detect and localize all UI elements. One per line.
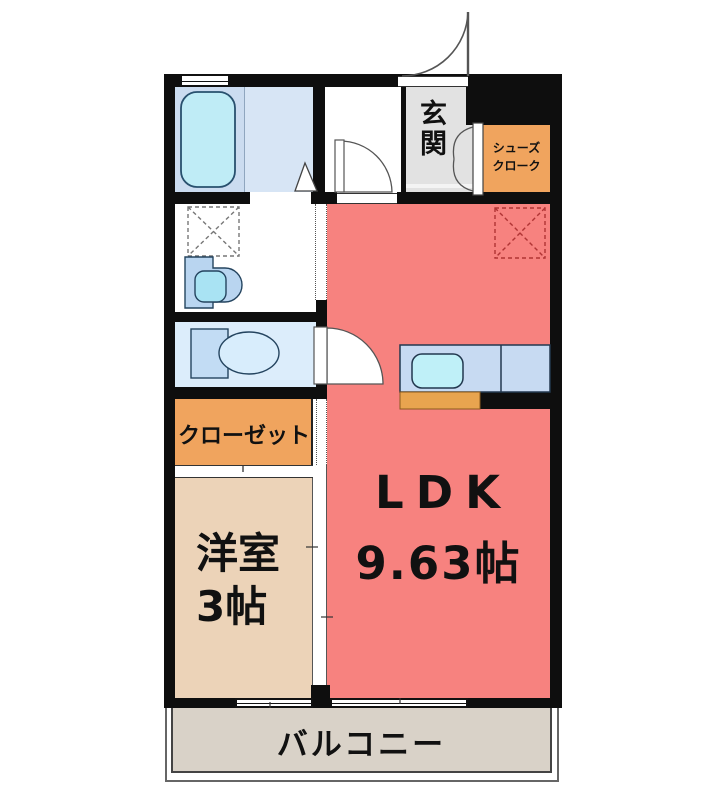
entry-door [402, 12, 468, 76]
ldk-name: LDK [337, 466, 550, 519]
washbasin [185, 257, 242, 308]
ldk-label: LDK 9.63帖 [327, 466, 550, 592]
washing-machine-space [188, 207, 239, 256]
shoe-cloak-label: シューズ クローク [483, 139, 550, 175]
refrigerator-space [495, 208, 545, 258]
balcony-label: バルコニー [171, 719, 552, 764]
kitchen-sink [412, 354, 463, 388]
kitchen-base-cabinet [400, 392, 480, 409]
shoe-cloak-label-line1: シューズ [493, 141, 540, 155]
shoe-cloak-label-line2: クローク [492, 159, 540, 173]
genkan-label: 玄関 [412, 99, 446, 171]
ldk-size: 9.63帖 [327, 527, 550, 592]
bathroom-folding-door [295, 163, 317, 191]
western-room-label: 洋室 3帖 [196, 528, 280, 633]
shoe-cloak-doors [453, 123, 483, 195]
kitchen-counter [400, 345, 550, 392]
western-room-name: 洋室 [196, 528, 280, 581]
fixtures-layer [0, 0, 722, 800]
western-room-size: 3帖 [196, 581, 280, 634]
toilet-door [314, 327, 383, 384]
toilet [191, 329, 279, 378]
closet-label: クローゼット [175, 418, 313, 450]
bathtub [181, 92, 235, 187]
floor-plan: 玄関 シューズ クローク クローゼット 洋室 3帖 LDK 9.63帖 バルコニ… [0, 0, 722, 800]
hall-door [335, 140, 392, 192]
